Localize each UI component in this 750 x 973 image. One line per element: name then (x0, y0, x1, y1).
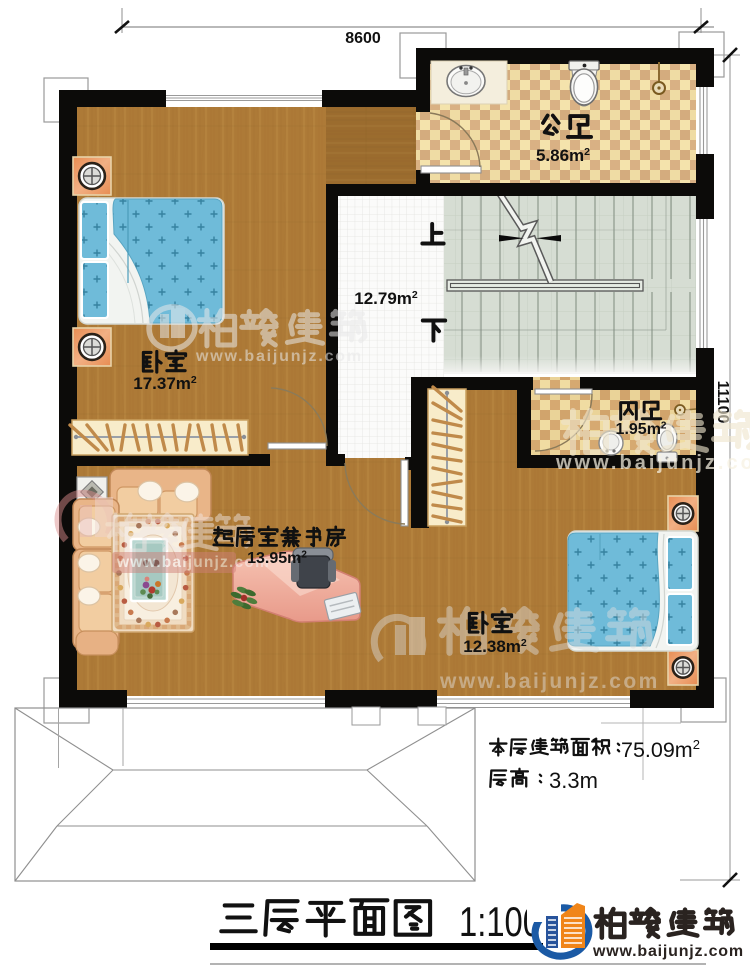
svg-text:8600: 8600 (345, 30, 381, 47)
svg-text:5.86m2: 5.86m2 (536, 146, 590, 165)
svg-text:12.38m2: 12.38m2 (463, 637, 527, 656)
svg-text:www.baijunjz.com: www.baijunjz.com (592, 943, 744, 960)
svg-text:1.95m2: 1.95m2 (616, 420, 667, 438)
svg-text:13.95m2: 13.95m2 (247, 549, 307, 567)
svg-text:www.baijunjz.com: www.baijunjz.com (439, 670, 660, 693)
svg-text:12.79m2: 12.79m2 (354, 289, 418, 308)
svg-text:www.baijunjz.com: www.baijunjz.com (195, 348, 363, 365)
svg-text:3.3m: 3.3m (549, 768, 598, 793)
svg-text:www.baijunjz.com: www.baijunjz.com (555, 452, 750, 474)
svg-text:17.37m2: 17.37m2 (133, 374, 197, 393)
svg-text:75.09m2: 75.09m2 (621, 737, 700, 762)
